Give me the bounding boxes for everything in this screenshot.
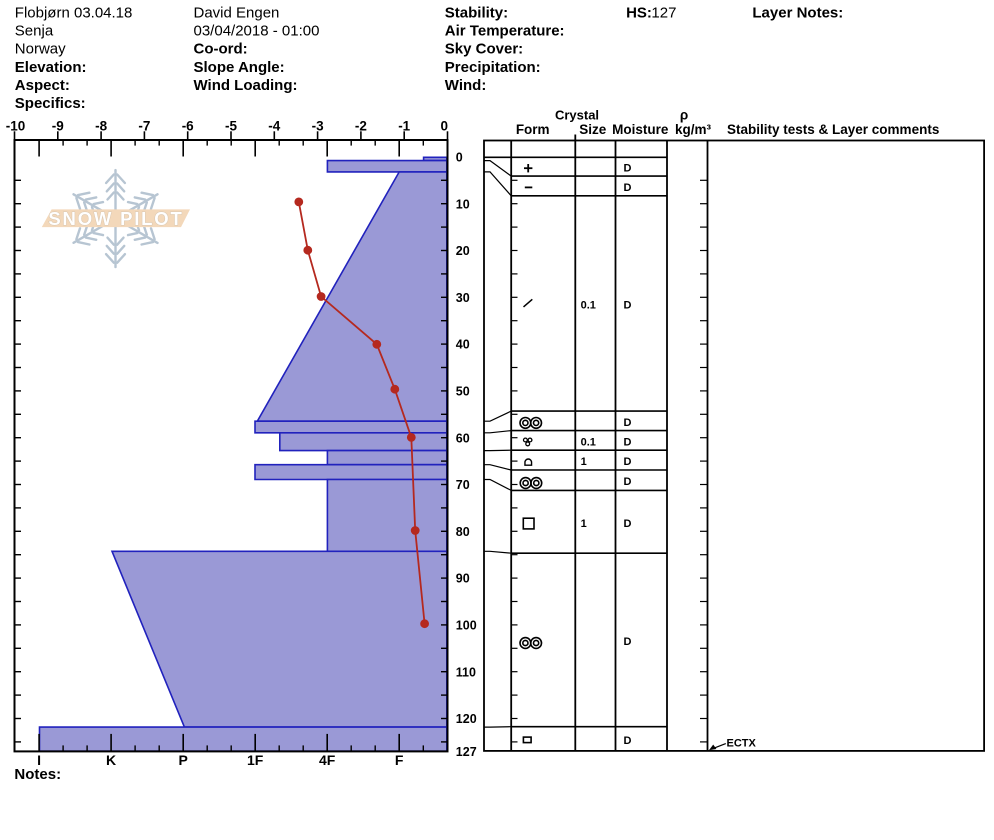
svg-text:1: 1 — [581, 518, 587, 530]
svg-text:20: 20 — [456, 244, 470, 258]
svg-text:D: D — [624, 436, 632, 448]
svg-text:D: D — [624, 735, 632, 747]
svg-text:D: D — [624, 476, 632, 488]
svg-text:HS:: HS: — [626, 4, 652, 21]
svg-text:Air Temperature:: Air Temperature: — [445, 23, 565, 40]
svg-text:110: 110 — [456, 665, 476, 679]
svg-text:Senja: Senja — [15, 23, 54, 40]
svg-text:Wind:: Wind: — [445, 77, 487, 94]
svg-text:Moisture: Moisture — [612, 122, 669, 137]
svg-text:0.1: 0.1 — [581, 300, 596, 312]
svg-text:10: 10 — [456, 197, 470, 211]
svg-text:Form: Form — [516, 122, 550, 137]
svg-text:-10: -10 — [6, 118, 26, 133]
svg-text:-7: -7 — [138, 118, 150, 133]
svg-text:P: P — [179, 752, 188, 768]
svg-text:127: 127 — [651, 4, 676, 21]
svg-text:-8: -8 — [95, 118, 107, 133]
svg-text:50: 50 — [456, 385, 470, 399]
svg-text:-2: -2 — [355, 118, 367, 133]
svg-text:Norway: Norway — [15, 41, 66, 58]
svg-text:ECTX: ECTX — [727, 737, 757, 749]
svg-text:-4: -4 — [268, 118, 280, 133]
svg-text:SNOW PILOT: SNOW PILOT — [48, 208, 183, 229]
svg-text:Wind Loading:: Wind Loading: — [194, 77, 298, 94]
svg-text:-5: -5 — [225, 118, 237, 133]
svg-text:Specifics:: Specifics: — [15, 95, 86, 112]
svg-text:4F: 4F — [319, 752, 336, 768]
svg-text:Slope Angle:: Slope Angle: — [194, 59, 285, 76]
svg-text:Stability:: Stability: — [445, 4, 508, 21]
svg-text:127: 127 — [456, 745, 477, 759]
svg-text:Stability tests & Layer commen: Stability tests & Layer comments — [727, 122, 939, 137]
svg-text:100: 100 — [456, 619, 477, 633]
svg-text:D: D — [624, 636, 632, 648]
svg-text:F: F — [395, 752, 404, 768]
svg-text:40: 40 — [456, 338, 470, 352]
svg-text:60: 60 — [456, 431, 470, 445]
svg-text:1: 1 — [581, 456, 587, 468]
svg-text:-6: -6 — [182, 118, 194, 133]
svg-text:Crystal: Crystal — [555, 107, 599, 122]
svg-text:70: 70 — [456, 478, 470, 492]
svg-text:David Engen: David Engen — [194, 4, 280, 21]
svg-text:Notes:: Notes: — [14, 766, 61, 783]
svg-text:Co-ord:: Co-ord: — [194, 41, 248, 58]
svg-text:D: D — [624, 417, 632, 429]
svg-text:0: 0 — [441, 118, 449, 133]
svg-text:-3: -3 — [312, 118, 324, 133]
svg-text:1F: 1F — [247, 752, 264, 768]
svg-text:D: D — [624, 300, 632, 312]
svg-text:0: 0 — [456, 151, 463, 165]
svg-text:D: D — [624, 456, 632, 468]
svg-text:0.1: 0.1 — [581, 436, 596, 448]
svg-text:-9: -9 — [52, 118, 64, 133]
svg-text:D: D — [624, 163, 632, 175]
svg-text:120: 120 — [456, 712, 477, 726]
svg-text:Sky Cover:: Sky Cover: — [445, 41, 523, 58]
svg-text:ρ: ρ — [680, 107, 688, 122]
svg-text:Layer Notes:: Layer Notes: — [752, 4, 843, 21]
svg-text:Precipitation:: Precipitation: — [445, 59, 541, 76]
svg-text:kg/m³: kg/m³ — [675, 122, 712, 137]
svg-text:Flobjørn 03.04.18: Flobjørn 03.04.18 — [15, 4, 133, 21]
svg-text:03/04/2018 - 01:00: 03/04/2018 - 01:00 — [194, 23, 320, 40]
svg-text:-1: -1 — [398, 118, 410, 133]
svg-text:Size: Size — [579, 122, 607, 137]
svg-text:D: D — [624, 182, 632, 194]
svg-text:30: 30 — [456, 291, 470, 305]
svg-text:80: 80 — [456, 525, 470, 539]
svg-text:90: 90 — [456, 572, 470, 586]
svg-text:D: D — [624, 518, 632, 530]
svg-text:K: K — [106, 752, 116, 768]
svg-text:Elevation:: Elevation: — [15, 59, 87, 76]
svg-text:Aspect:: Aspect: — [15, 77, 70, 94]
